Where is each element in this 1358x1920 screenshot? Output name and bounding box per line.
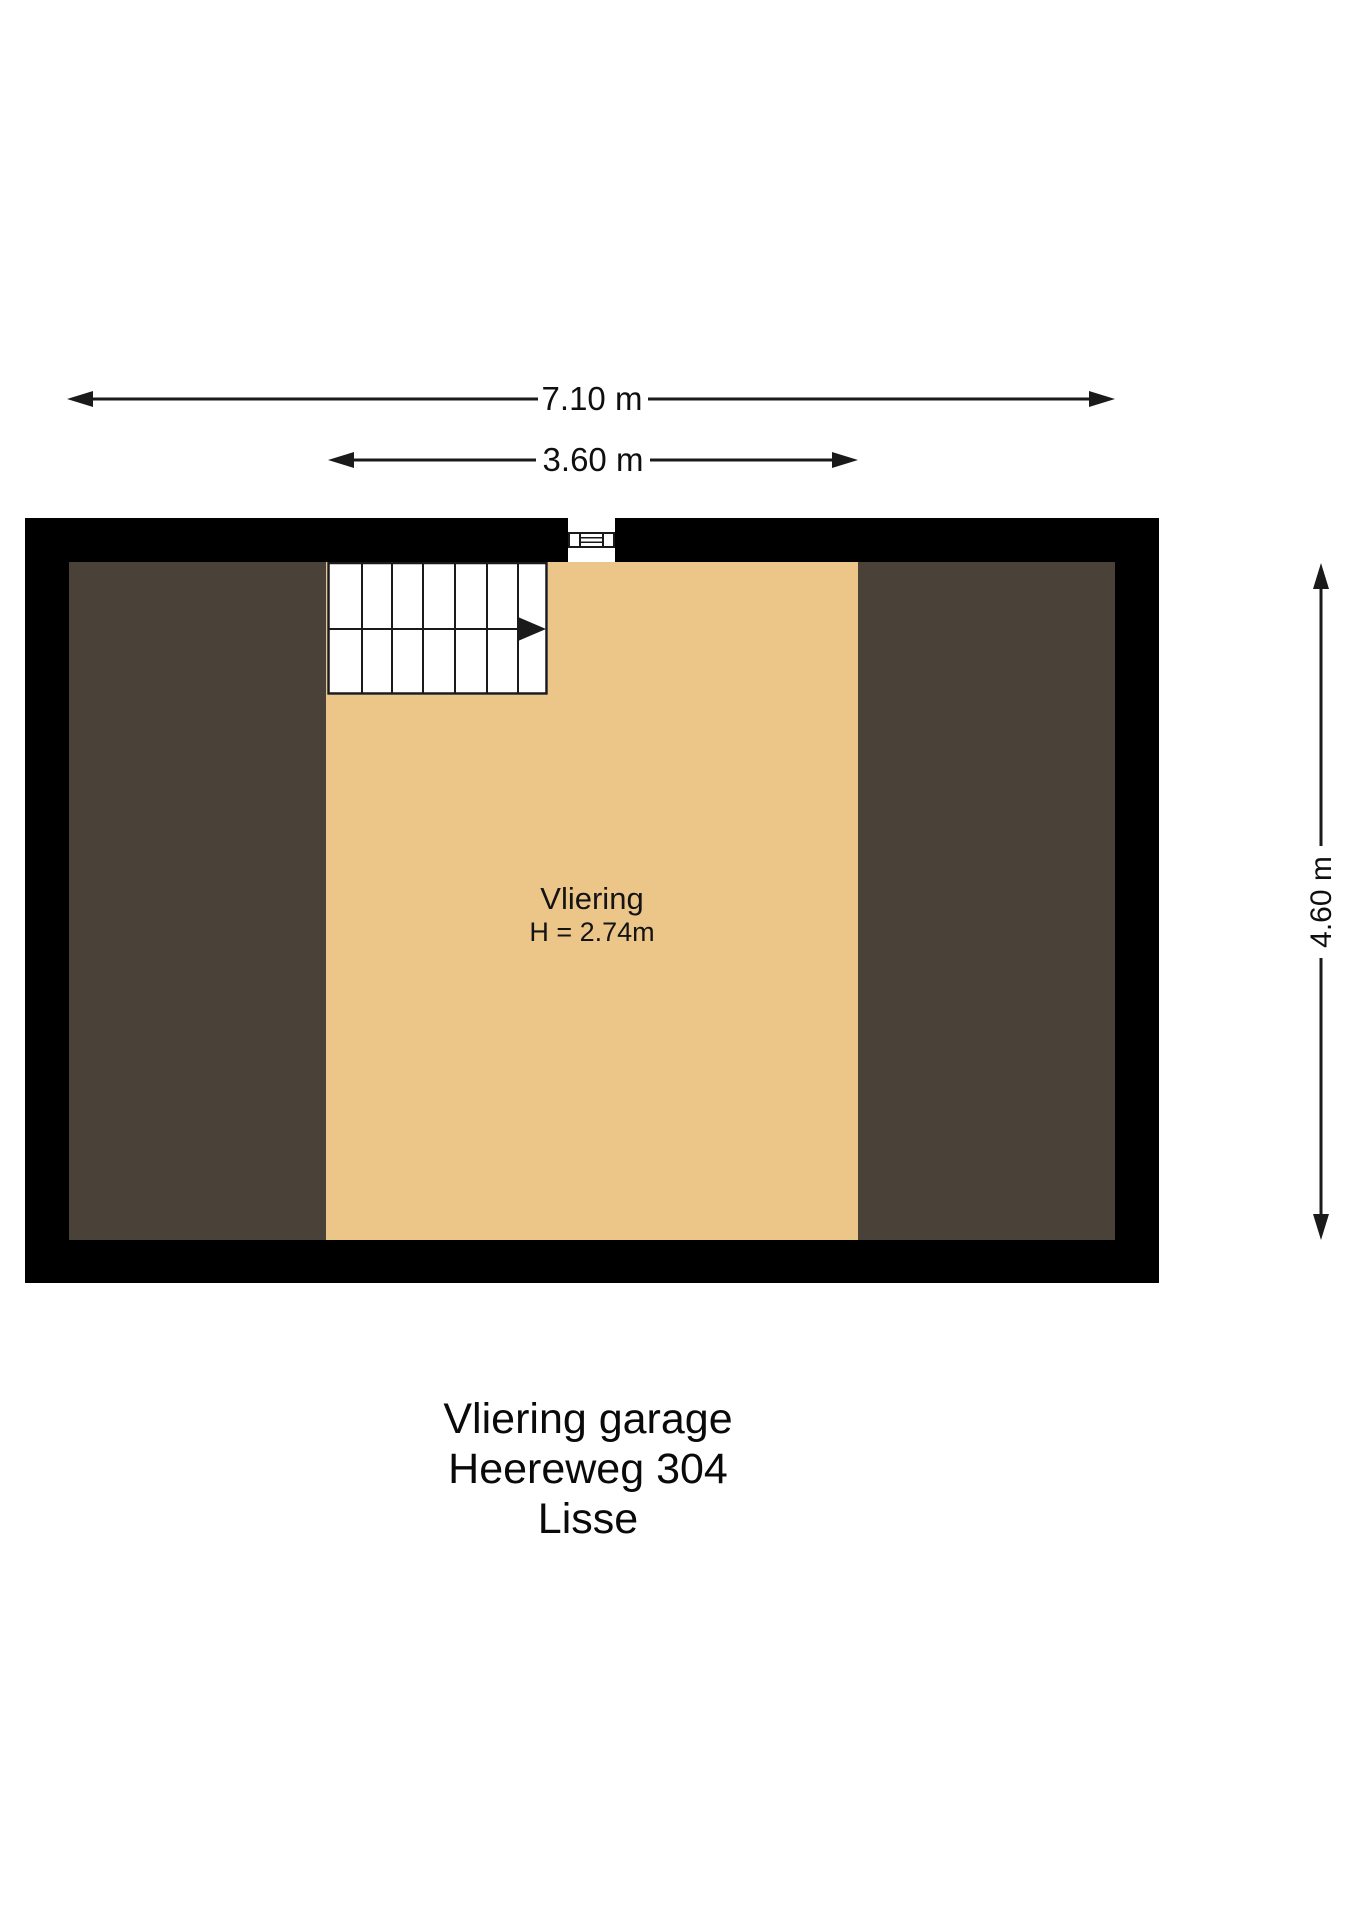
floorplan-page: 7.10 m 3.60 m 4.60 m xyxy=(0,0,1358,1920)
room-label: Vliering xyxy=(442,882,742,916)
right-roof-area xyxy=(858,562,1115,1240)
total-width-dimension-label: 7.10 m xyxy=(492,379,692,419)
caption-line-2: Heereweg 304 xyxy=(288,1444,888,1494)
left-roof-area xyxy=(69,562,326,1240)
caption: Vliering garage Heereweg 304 Lisse xyxy=(288,1394,888,1544)
room-height-label: H = 2.74m xyxy=(442,917,742,947)
attic-width-dimension-label: 3.60 m xyxy=(493,440,693,480)
wall-opening xyxy=(568,518,615,562)
window-icon xyxy=(568,518,615,562)
caption-line-1: Vliering garage xyxy=(288,1394,888,1444)
caption-line-3: Lisse xyxy=(288,1494,888,1544)
staircase xyxy=(327,562,548,695)
stairs-icon xyxy=(327,562,548,695)
total-depth-dimension-label: 4.60 m xyxy=(1302,802,1342,1002)
